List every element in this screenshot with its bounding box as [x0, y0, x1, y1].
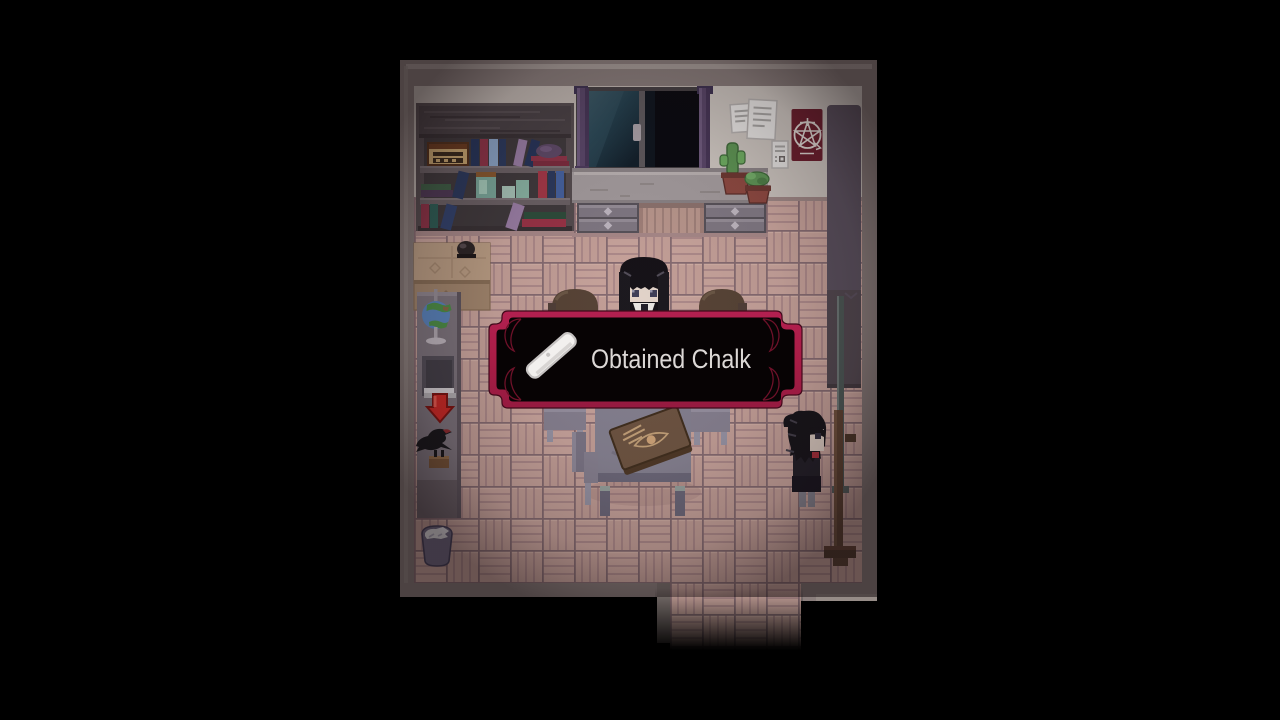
- svg-text:Obtained Chalk: Obtained Chalk: [591, 344, 752, 374]
